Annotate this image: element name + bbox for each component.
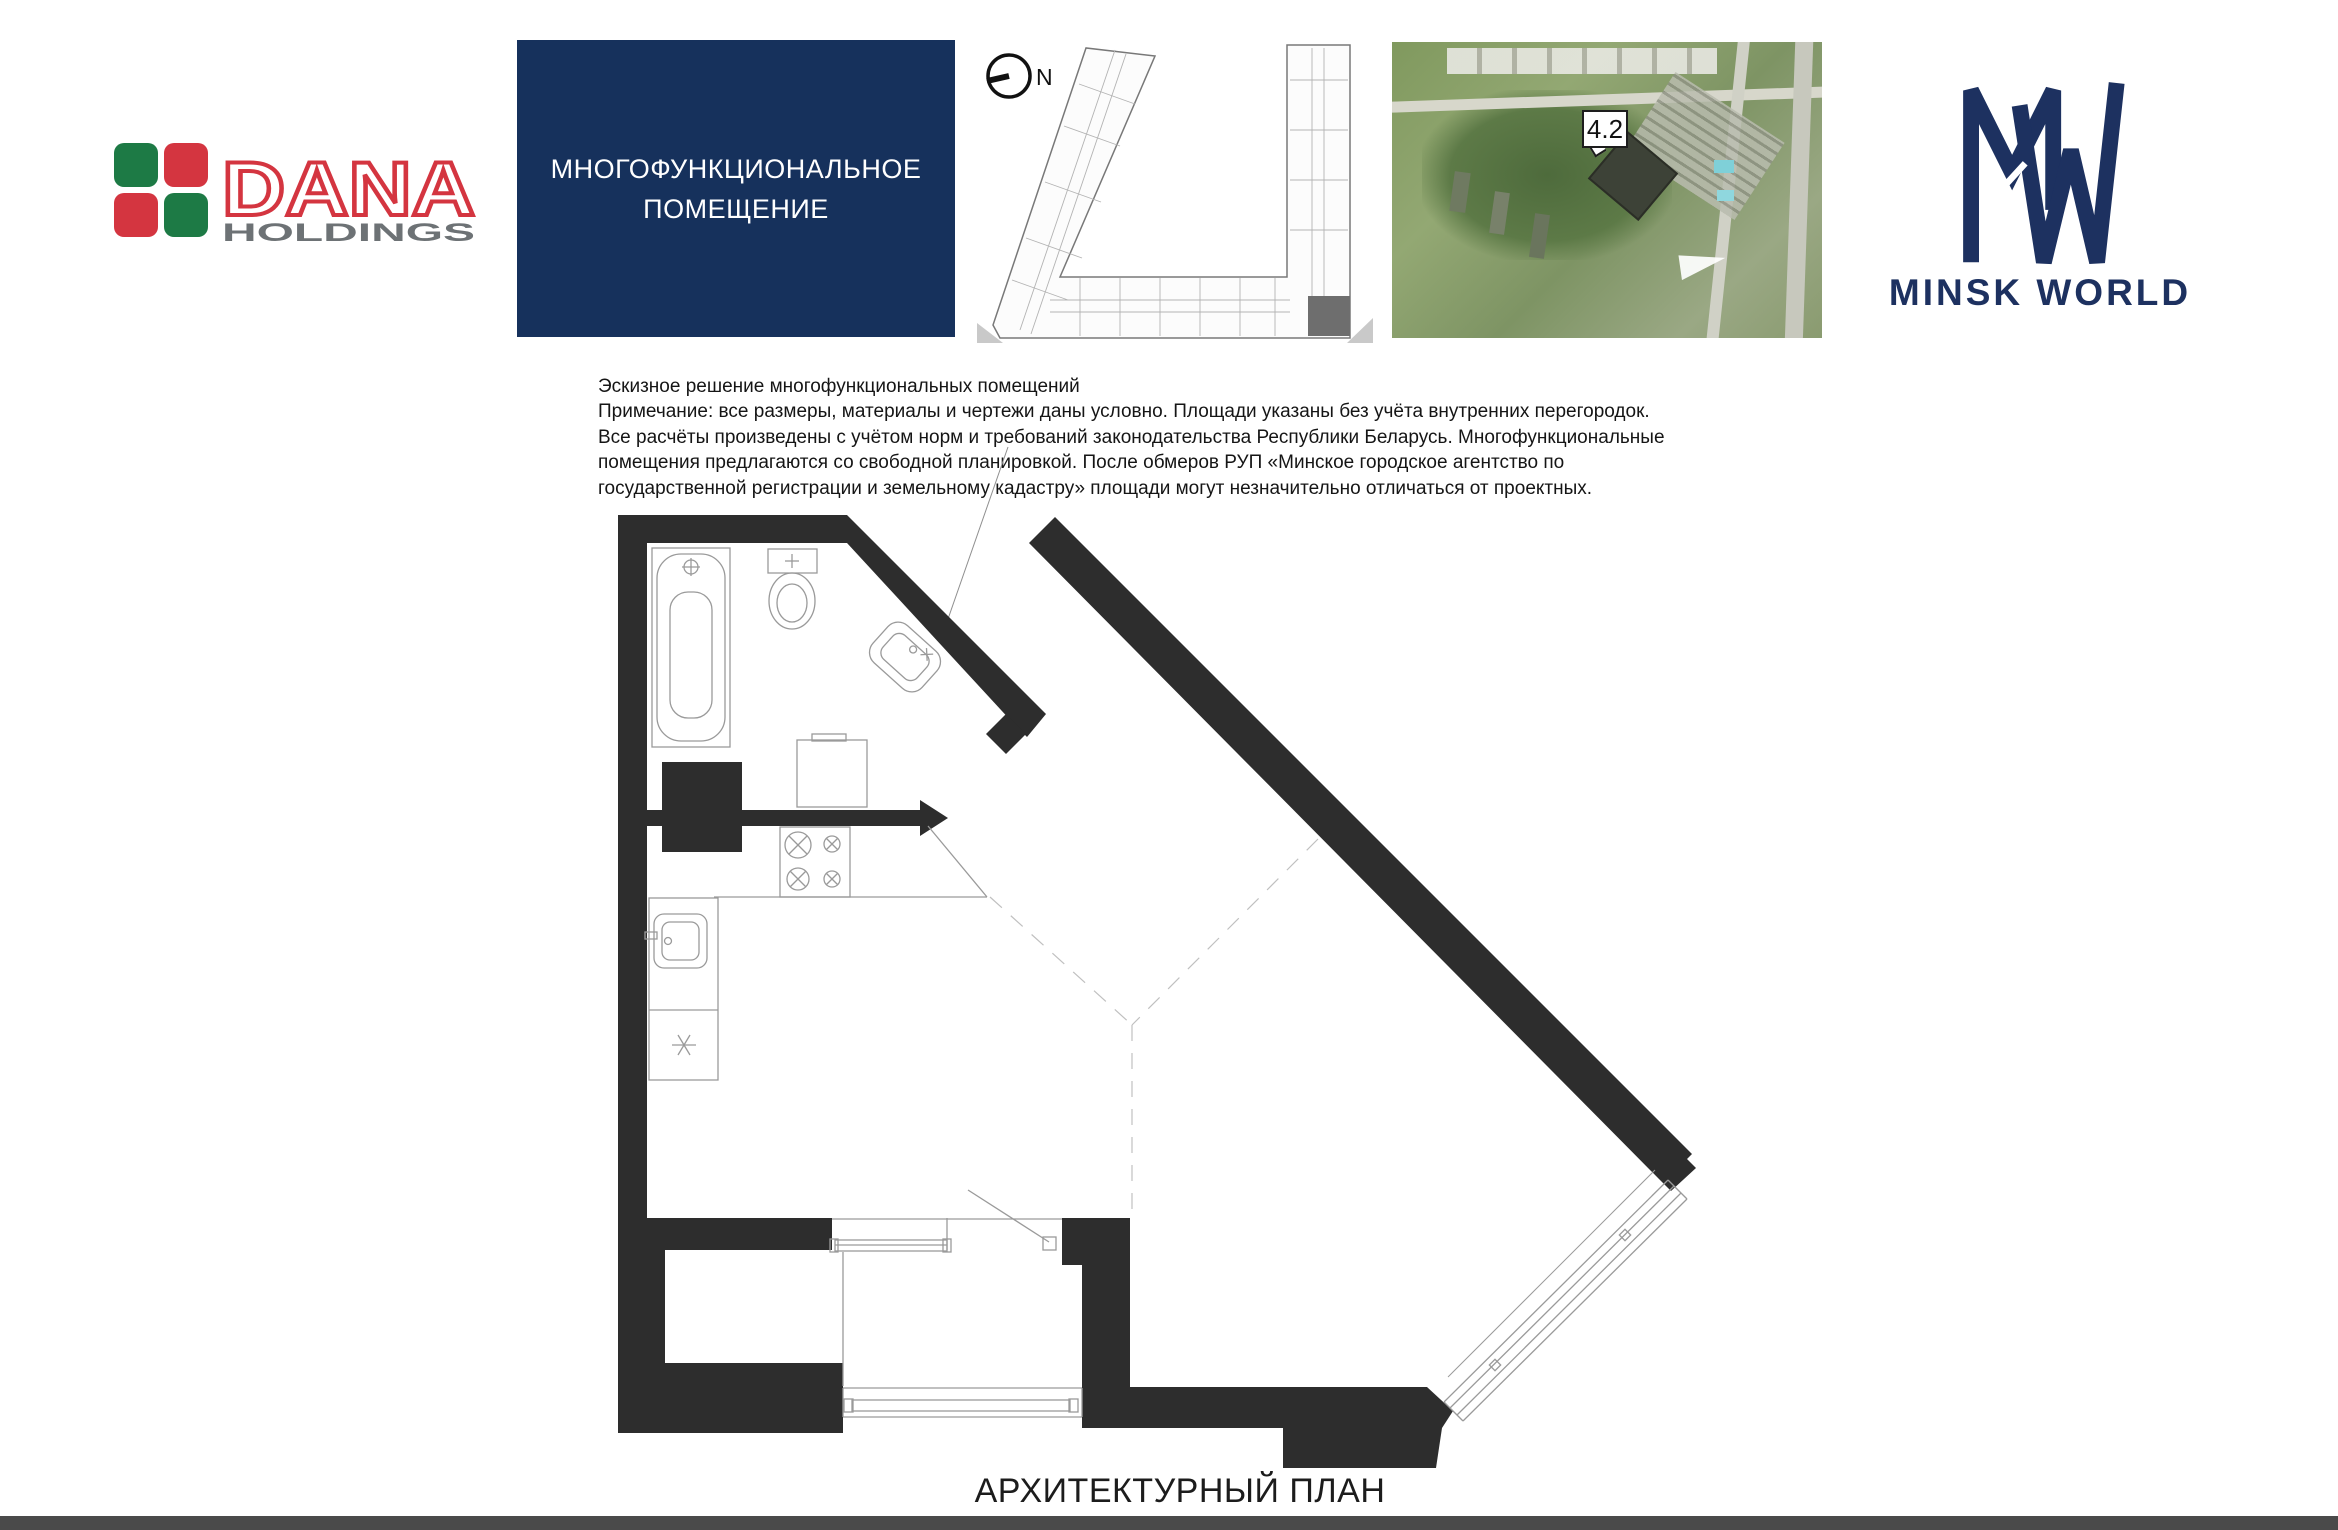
aerial-pool xyxy=(1714,160,1734,173)
floor-plan xyxy=(590,430,1760,1500)
footer-bar xyxy=(0,1516,2338,1530)
aerial-photo: 4.2 xyxy=(1392,42,1822,338)
dana-logo-sub: HOLDINGS xyxy=(222,219,475,245)
refrigerator xyxy=(649,1010,718,1055)
aerial-pool xyxy=(1717,190,1734,201)
kitchen-counter xyxy=(649,826,987,1080)
unit-location-highlight xyxy=(1308,296,1350,336)
bottom-wall xyxy=(1130,1387,1453,1428)
bottom-wall-step xyxy=(1283,1428,1442,1468)
free-plan-dashed-lines xyxy=(990,839,1318,1216)
diagonal-window xyxy=(1444,1170,1687,1421)
dana-logo-squares-icon xyxy=(114,143,208,237)
building-callout-badge: 4.2 xyxy=(1582,110,1628,148)
kitchen-sink xyxy=(645,914,707,968)
aerial-buildings-row xyxy=(1447,48,1717,74)
balcony-inner-wall xyxy=(645,1218,832,1250)
column xyxy=(662,762,742,852)
partition-tip xyxy=(920,800,948,836)
unit-type-line1: МНОГОФУНКЦИОНАЛЬНОЕ xyxy=(551,149,922,189)
plan-caption: АРХИТЕКТУРНЫЙ ПЛАН xyxy=(600,1472,1760,1511)
note-line: Эскизное решение многофункциональных пом… xyxy=(598,374,1798,399)
dana-holdings-logo: DANA HOLDINGS xyxy=(112,140,480,245)
minsk-world-monogram-icon xyxy=(1958,68,2126,266)
aerial-road xyxy=(1784,42,1813,338)
loggia-window xyxy=(843,1252,1082,1417)
long-diagonal-wall xyxy=(1029,517,1696,1191)
kitchen-partition xyxy=(628,810,920,826)
balcony-door-window xyxy=(830,1190,1062,1252)
unit-type-box: МНОГОФУНКЦИОНАЛЬНОЕ ПОМЕЩЕНИЕ xyxy=(517,40,955,337)
toilet xyxy=(768,549,817,629)
water-heater xyxy=(797,734,867,807)
minsk-world-wordmark: MINSK WORLD xyxy=(1870,272,2210,314)
entrance-diagonal-wall xyxy=(847,515,1046,737)
page: { "brand": { "dana": { "name": "DANA", "… xyxy=(0,0,2338,1530)
door-swing xyxy=(968,1190,1049,1242)
cooktop xyxy=(780,827,850,897)
bathtub xyxy=(652,548,730,747)
unit-type-line2: ПОМЕЩЕНИЕ xyxy=(643,189,829,229)
note-line: Примечание: все размеры, материалы и чер… xyxy=(598,399,1798,424)
building-callout-label: 4.2 xyxy=(1587,114,1623,145)
north-label: N xyxy=(1036,64,1053,90)
north-arrow-icon xyxy=(987,55,1030,97)
leader-line xyxy=(941,447,1008,639)
building-plan-thumbnail: N xyxy=(965,30,1385,350)
